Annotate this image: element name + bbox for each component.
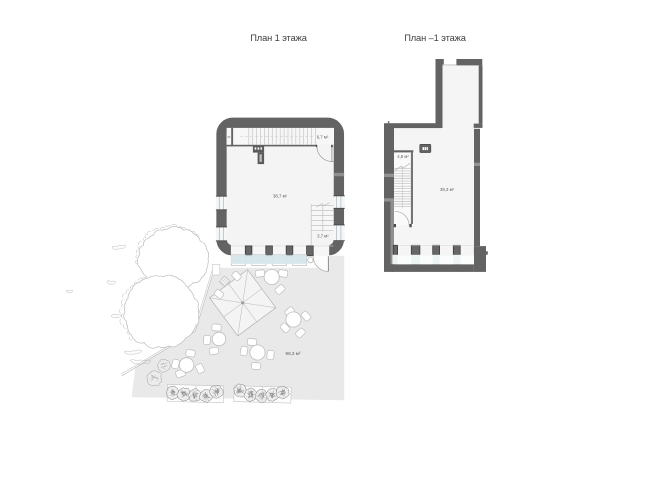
svg-text:План –1 этажа: План –1 этажа <box>404 33 467 43</box>
svg-text:План 1 этажа: План 1 этажа <box>250 33 308 43</box>
svg-text:98,3 м²: 98,3 м² <box>286 351 301 356</box>
svg-text:6,7 м²: 6,7 м² <box>317 134 329 139</box>
svg-text:39,3 м²: 39,3 м² <box>440 187 455 192</box>
svg-text:38,7 м²: 38,7 м² <box>273 194 288 199</box>
svg-text:3,7 м²: 3,7 м² <box>317 233 329 238</box>
svg-text:4,8 м²: 4,8 м² <box>397 154 409 159</box>
